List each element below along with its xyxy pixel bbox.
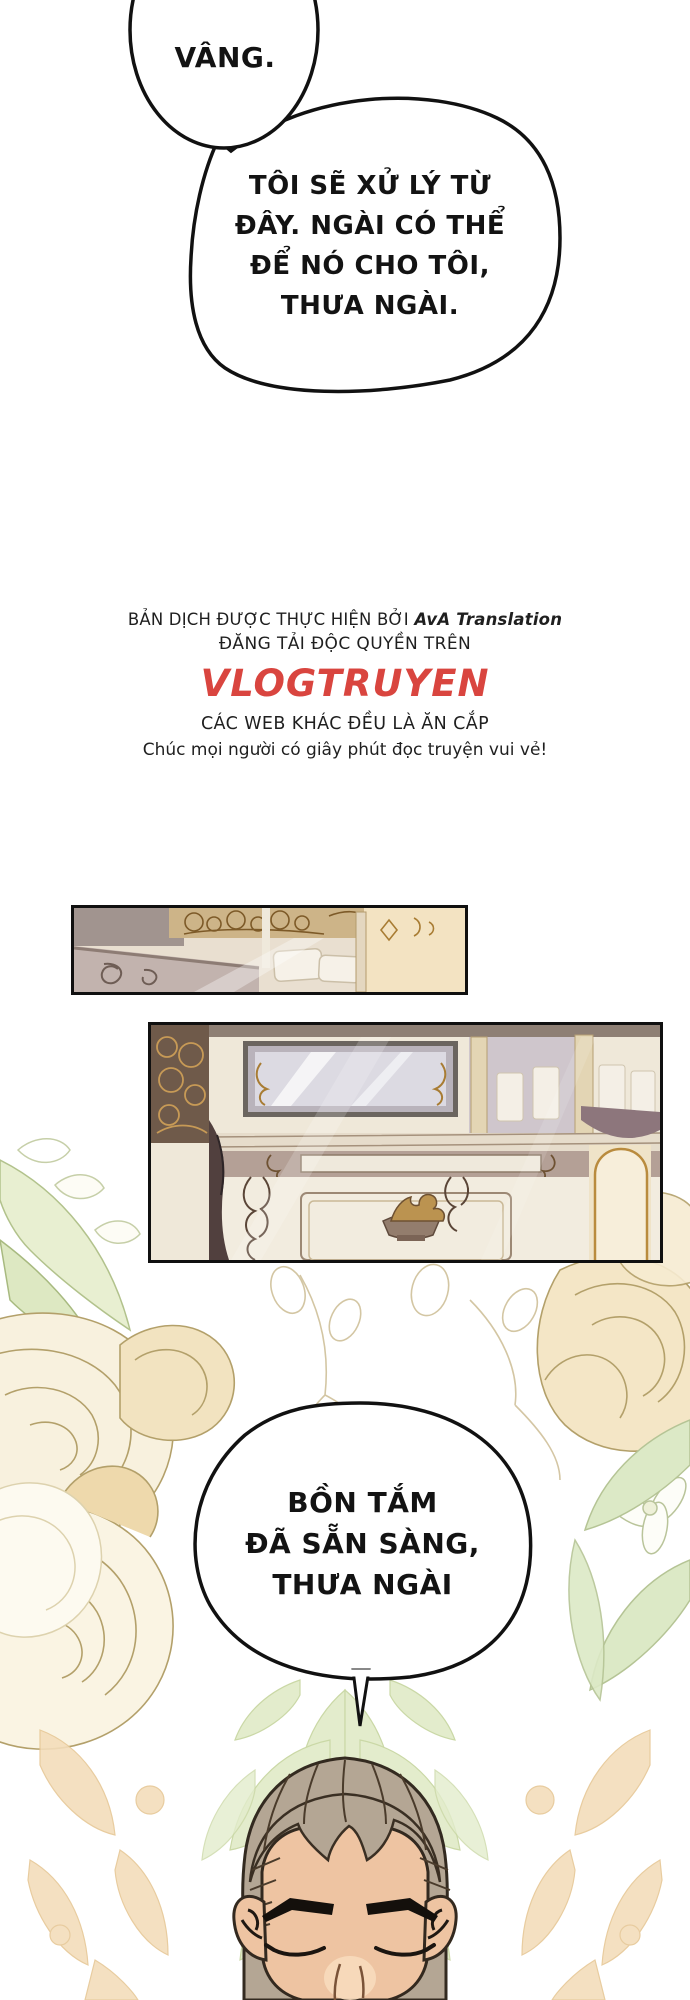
credit-line-1-text: BẢN DỊCH ĐƯỢC THỰC HIỆN BỞI bbox=[128, 610, 415, 629]
manhwa-page: VÂNG. TÔI SẼ XỬ LÝ TỪ ĐÂY. NGÀI CÓ THỂ Đ… bbox=[0, 0, 690, 2000]
bubble2-dialogue: TÔI SẼ XỬ LÝ TỪ ĐÂY. NGÀI CÓ THỂ ĐỂ NÓ C… bbox=[200, 166, 540, 326]
site-name: VLOGTRUYEN bbox=[0, 662, 690, 705]
bubble2-line: THƯA NGÀI. bbox=[200, 286, 540, 326]
nose-highlight bbox=[324, 1956, 376, 2000]
credit-line-5: Chúc mọi người có giây phút đọc truyện v… bbox=[0, 740, 690, 760]
panel1-art bbox=[74, 908, 465, 992]
bubble-tail bbox=[353, 1670, 369, 1726]
bubble3-dialogue: BỒN TẮM ĐÃ SẴN SÀNG, THƯA NGÀI bbox=[200, 1482, 525, 1605]
left-ear bbox=[234, 1896, 266, 1960]
butler-character-head bbox=[190, 1750, 510, 2000]
panel-interior-room bbox=[148, 1022, 663, 1263]
translator-credits: BẢN DỊCH ĐƯỢC THỰC HIỆN BỞI AvA Translat… bbox=[0, 610, 690, 760]
bubble2-line: TÔI SẼ XỬ LÝ TỪ bbox=[200, 166, 540, 206]
bubble3-line: ĐÃ SẴN SÀNG, bbox=[200, 1523, 525, 1564]
panel-interior-strip bbox=[71, 905, 468, 995]
bubble1-dialogue: VÂNG. bbox=[140, 38, 310, 78]
bubble2-line: ĐÂY. NGÀI CÓ THỂ bbox=[200, 206, 540, 246]
translation-group-name: AvA Translation bbox=[414, 610, 562, 629]
right-white-flower bbox=[569, 1420, 690, 1700]
credit-line-1: BẢN DỊCH ĐƯỢC THỰC HIỆN BỞI AvA Translat… bbox=[0, 610, 690, 629]
panel2-art bbox=[151, 1025, 660, 1260]
credit-line-4: CÁC WEB KHÁC ĐỀU LÀ ĂN CẮP bbox=[0, 714, 690, 734]
bubble3-line: BỒN TẮM bbox=[200, 1482, 525, 1523]
bubble2-line: ĐỂ NÓ CHO TÔI, bbox=[200, 246, 540, 286]
bubble3-line: THƯA NGÀI bbox=[200, 1564, 525, 1605]
credit-line-2: ĐĂNG TẢI ĐỘC QUYỀN TRÊN bbox=[0, 634, 690, 654]
